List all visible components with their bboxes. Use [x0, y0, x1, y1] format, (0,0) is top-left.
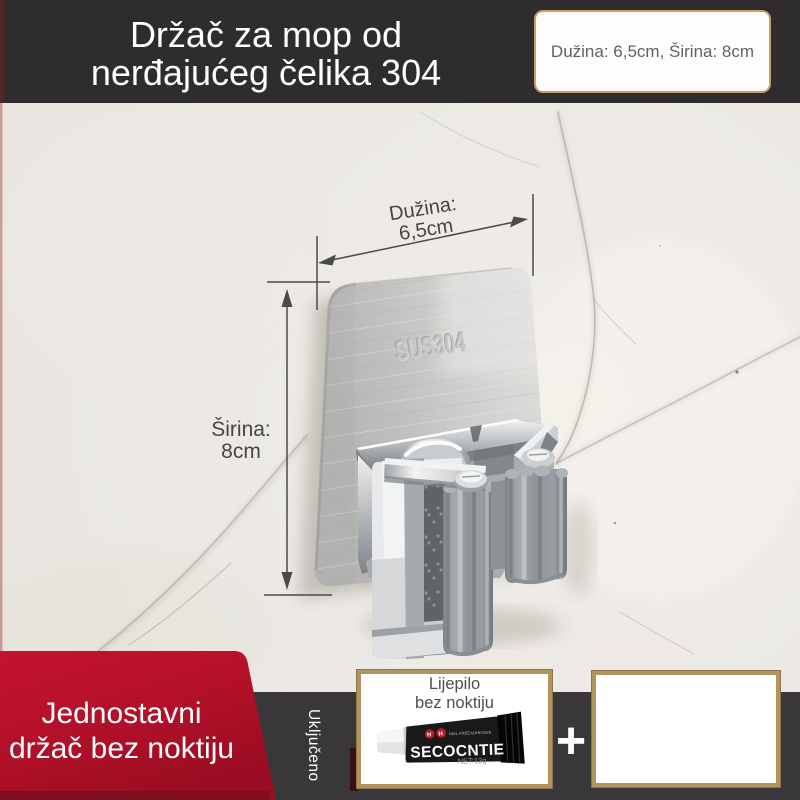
svg-text:H: H: [438, 731, 443, 737]
svg-text:NET:12g: NET:12g: [457, 756, 486, 766]
svg-text:H: H: [427, 732, 432, 738]
